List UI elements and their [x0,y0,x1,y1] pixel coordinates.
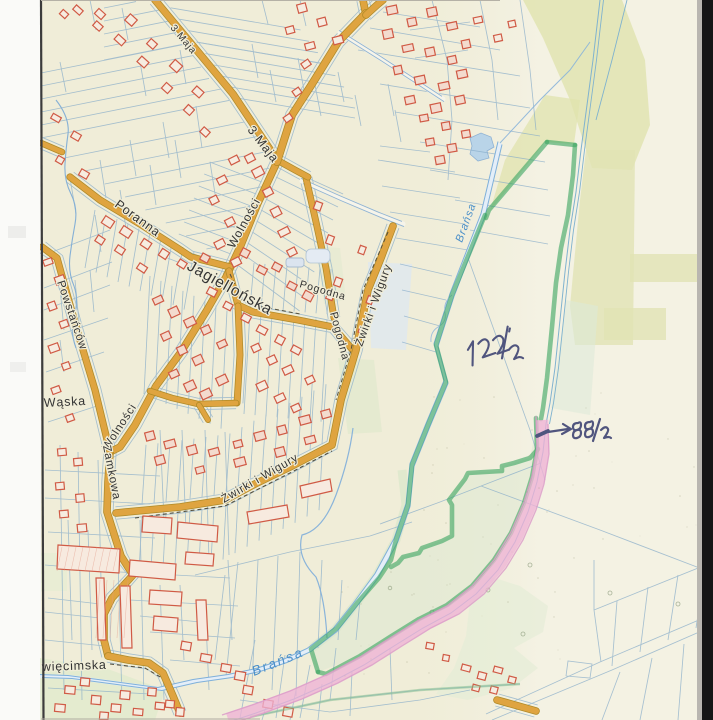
svg-text:Wąska: Wąska [43,394,86,410]
svg-text:więcimska: więcimska [41,658,107,674]
